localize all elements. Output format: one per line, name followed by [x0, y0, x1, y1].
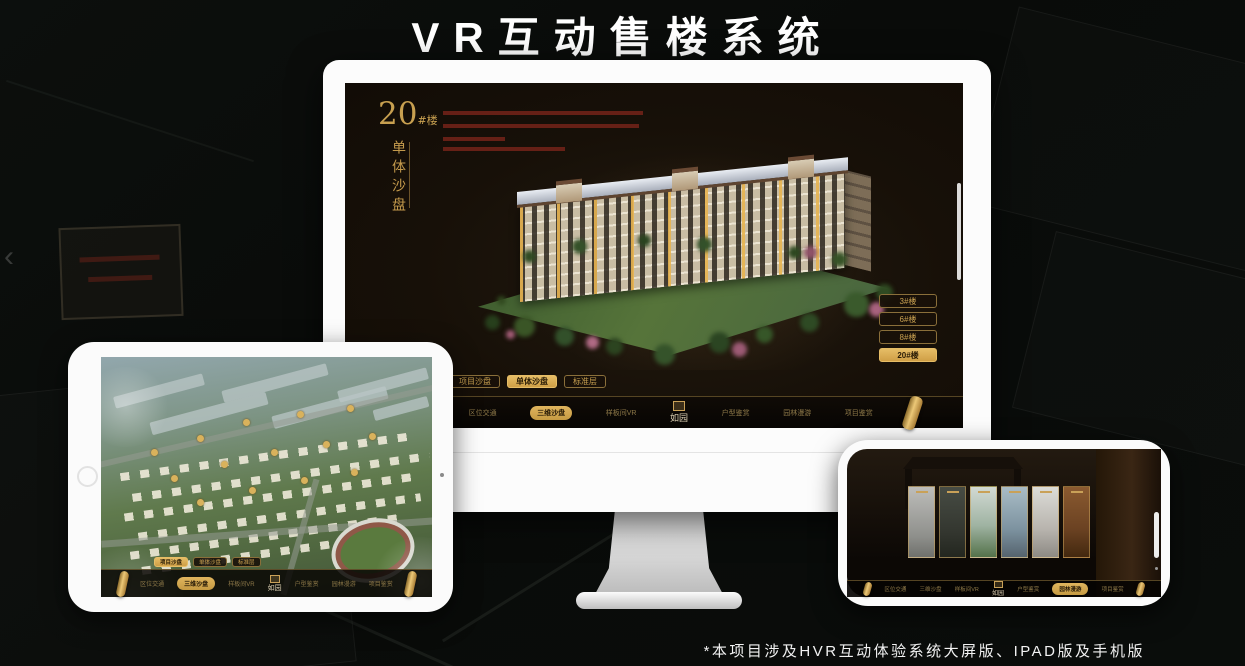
building-badge[interactable]: [243, 419, 250, 426]
building-badge[interactable]: [249, 487, 256, 494]
building-badge[interactable]: [369, 433, 376, 440]
brand-logo: 如园: [992, 581, 1004, 597]
building-badge[interactable]: [351, 469, 358, 476]
nav-item-unit-plans[interactable]: 户型鉴赏: [1017, 585, 1039, 593]
building-badge[interactable]: [297, 411, 304, 418]
brand-logo: 如园: [268, 575, 282, 593]
page-title: VR互动售楼系统: [0, 4, 1245, 65]
tablet-home-button[interactable]: [77, 466, 98, 487]
nav-item-3d-sandtable[interactable]: 三维沙盘: [530, 406, 572, 420]
scroll-handle-icon[interactable]: [901, 394, 924, 430]
building-number-heading: 20#楼: [378, 96, 438, 132]
phone-navbar: 区位交通 三维沙盘 样板间VR 如园 户型鉴赏 园林漫游 项目鉴赏: [847, 580, 1161, 597]
background-certificate: [58, 224, 183, 320]
scroll-handle-icon[interactable]: [403, 570, 417, 597]
building-badge[interactable]: [171, 475, 178, 482]
building-badge[interactable]: [151, 449, 158, 456]
building-badge[interactable]: [197, 435, 204, 442]
scroll-handle-icon[interactable]: [1135, 581, 1146, 596]
panorama-thumb[interactable]: [939, 486, 966, 558]
floor-button-group: 3#楼 6#楼 8#楼 20#楼: [879, 294, 937, 362]
floor-button-20[interactable]: 20#楼: [879, 348, 937, 362]
residential-row: [120, 433, 408, 481]
tab-project-sandtable[interactable]: 项目沙盘: [154, 557, 188, 567]
tablet-tabs: 项目沙盘 单体沙盘 标准层: [154, 557, 261, 567]
panorama-thumb[interactable]: [1032, 486, 1059, 558]
nav-item-project-intro[interactable]: 项目鉴赏: [845, 408, 873, 418]
tablet-camera: [440, 473, 444, 477]
industrial-building: [221, 363, 328, 403]
phone-screen-dot: [1155, 567, 1158, 570]
building-number-suffix: #楼: [417, 114, 437, 127]
panorama-thumb[interactable]: [970, 486, 997, 558]
nav-item-unit-plans[interactable]: 户型鉴赏: [722, 408, 750, 418]
monitor-stand-base: [576, 592, 742, 609]
fog-overlay: [101, 367, 171, 447]
nav-item-showroom-vr[interactable]: 样板间VR: [228, 579, 254, 588]
building-badge[interactable]: [271, 449, 278, 456]
floor-button-6[interactable]: 6#楼: [879, 312, 937, 326]
roof-dormer: [788, 155, 814, 180]
nav-item-location[interactable]: 区位交通: [884, 585, 906, 593]
interior-wall: [1096, 449, 1161, 597]
headline-divider: [409, 142, 410, 208]
scroll-handle-icon[interactable]: [115, 570, 129, 597]
building-badge[interactable]: [197, 499, 204, 506]
monitor-tabs: 项目沙盘 单体沙盘 标准层: [450, 375, 606, 388]
nav-item-showroom-vr[interactable]: 样板间VR: [606, 408, 637, 418]
landscape-trees: [497, 296, 506, 305]
building-badge[interactable]: [221, 461, 228, 468]
floor-button-3[interactable]: 3#楼: [879, 294, 937, 308]
background-map-road: [6, 80, 254, 162]
tablet-screen: [101, 357, 432, 597]
floor-button-8[interactable]: 8#楼: [879, 330, 937, 344]
tab-standard-floor[interactable]: 标准层: [232, 557, 261, 567]
courtyard-roof-silhouette: [903, 457, 1023, 469]
tab-single-sandtable[interactable]: 单体沙盘: [193, 557, 227, 567]
tablet-navbar: 区位交通 三维沙盘 样板间VR 如园 户型鉴赏 园林漫游 项目鉴赏: [101, 569, 432, 597]
building-badge[interactable]: [347, 405, 354, 412]
building-end-face: [845, 170, 871, 271]
nav-item-3d-sandtable[interactable]: 三维沙盘: [177, 577, 215, 590]
single-sandtable-vertical-label: 单体沙盘: [389, 140, 409, 216]
tab-project-sandtable[interactable]: 项目沙盘: [450, 375, 500, 388]
nav-item-project-intro[interactable]: 项目鉴赏: [369, 579, 393, 588]
monitor-stand: [593, 505, 725, 598]
nav-item-3d-sandtable[interactable]: 三维沙盘: [920, 585, 942, 593]
roof-dormer: [672, 167, 698, 192]
nav-item-garden-roam[interactable]: 园林漫游: [332, 579, 356, 588]
nav-item-unit-plans[interactable]: 户型鉴赏: [295, 579, 319, 588]
panorama-thumb[interactable]: [908, 486, 935, 558]
chevron-left-icon: ‹: [4, 240, 14, 274]
nav-item-garden-roam[interactable]: 园林漫游: [783, 408, 811, 418]
nav-item-location[interactable]: 区位交通: [469, 408, 497, 418]
nav-item-project-intro[interactable]: 项目鉴赏: [1102, 585, 1124, 593]
tab-standard-floor[interactable]: 标准层: [564, 375, 606, 388]
nav-item-garden-roam[interactable]: 园林漫游: [1052, 583, 1088, 595]
brand-logo: 如园: [670, 401, 688, 424]
building-badge[interactable]: [323, 441, 330, 448]
phone-scrollbar[interactable]: [1154, 512, 1159, 558]
building-badge[interactable]: [301, 477, 308, 484]
scroll-handle-icon[interactable]: [862, 581, 873, 596]
blossom-trees: [506, 330, 515, 339]
nav-item-location[interactable]: 区位交通: [140, 579, 164, 588]
nav-item-showroom-vr[interactable]: 样板间VR: [955, 585, 979, 593]
background-screenshot-tile: [1012, 231, 1245, 471]
roof-dormer: [556, 179, 582, 204]
tab-single-sandtable[interactable]: 单体沙盘: [507, 375, 557, 388]
screen-scrollbar[interactable]: [957, 183, 961, 280]
poster-canvas: ‹ VR互动售楼系统 20#楼 单体沙盘 3#楼 6#楼 8#楼 20#楼 项目…: [0, 0, 1245, 666]
footnote: *本项目涉及HVR互动体验系统大屏版、IPAD版及手机版: [704, 640, 1145, 661]
panorama-thumb[interactable]: [1063, 486, 1090, 558]
panorama-thumb[interactable]: [1001, 486, 1028, 558]
